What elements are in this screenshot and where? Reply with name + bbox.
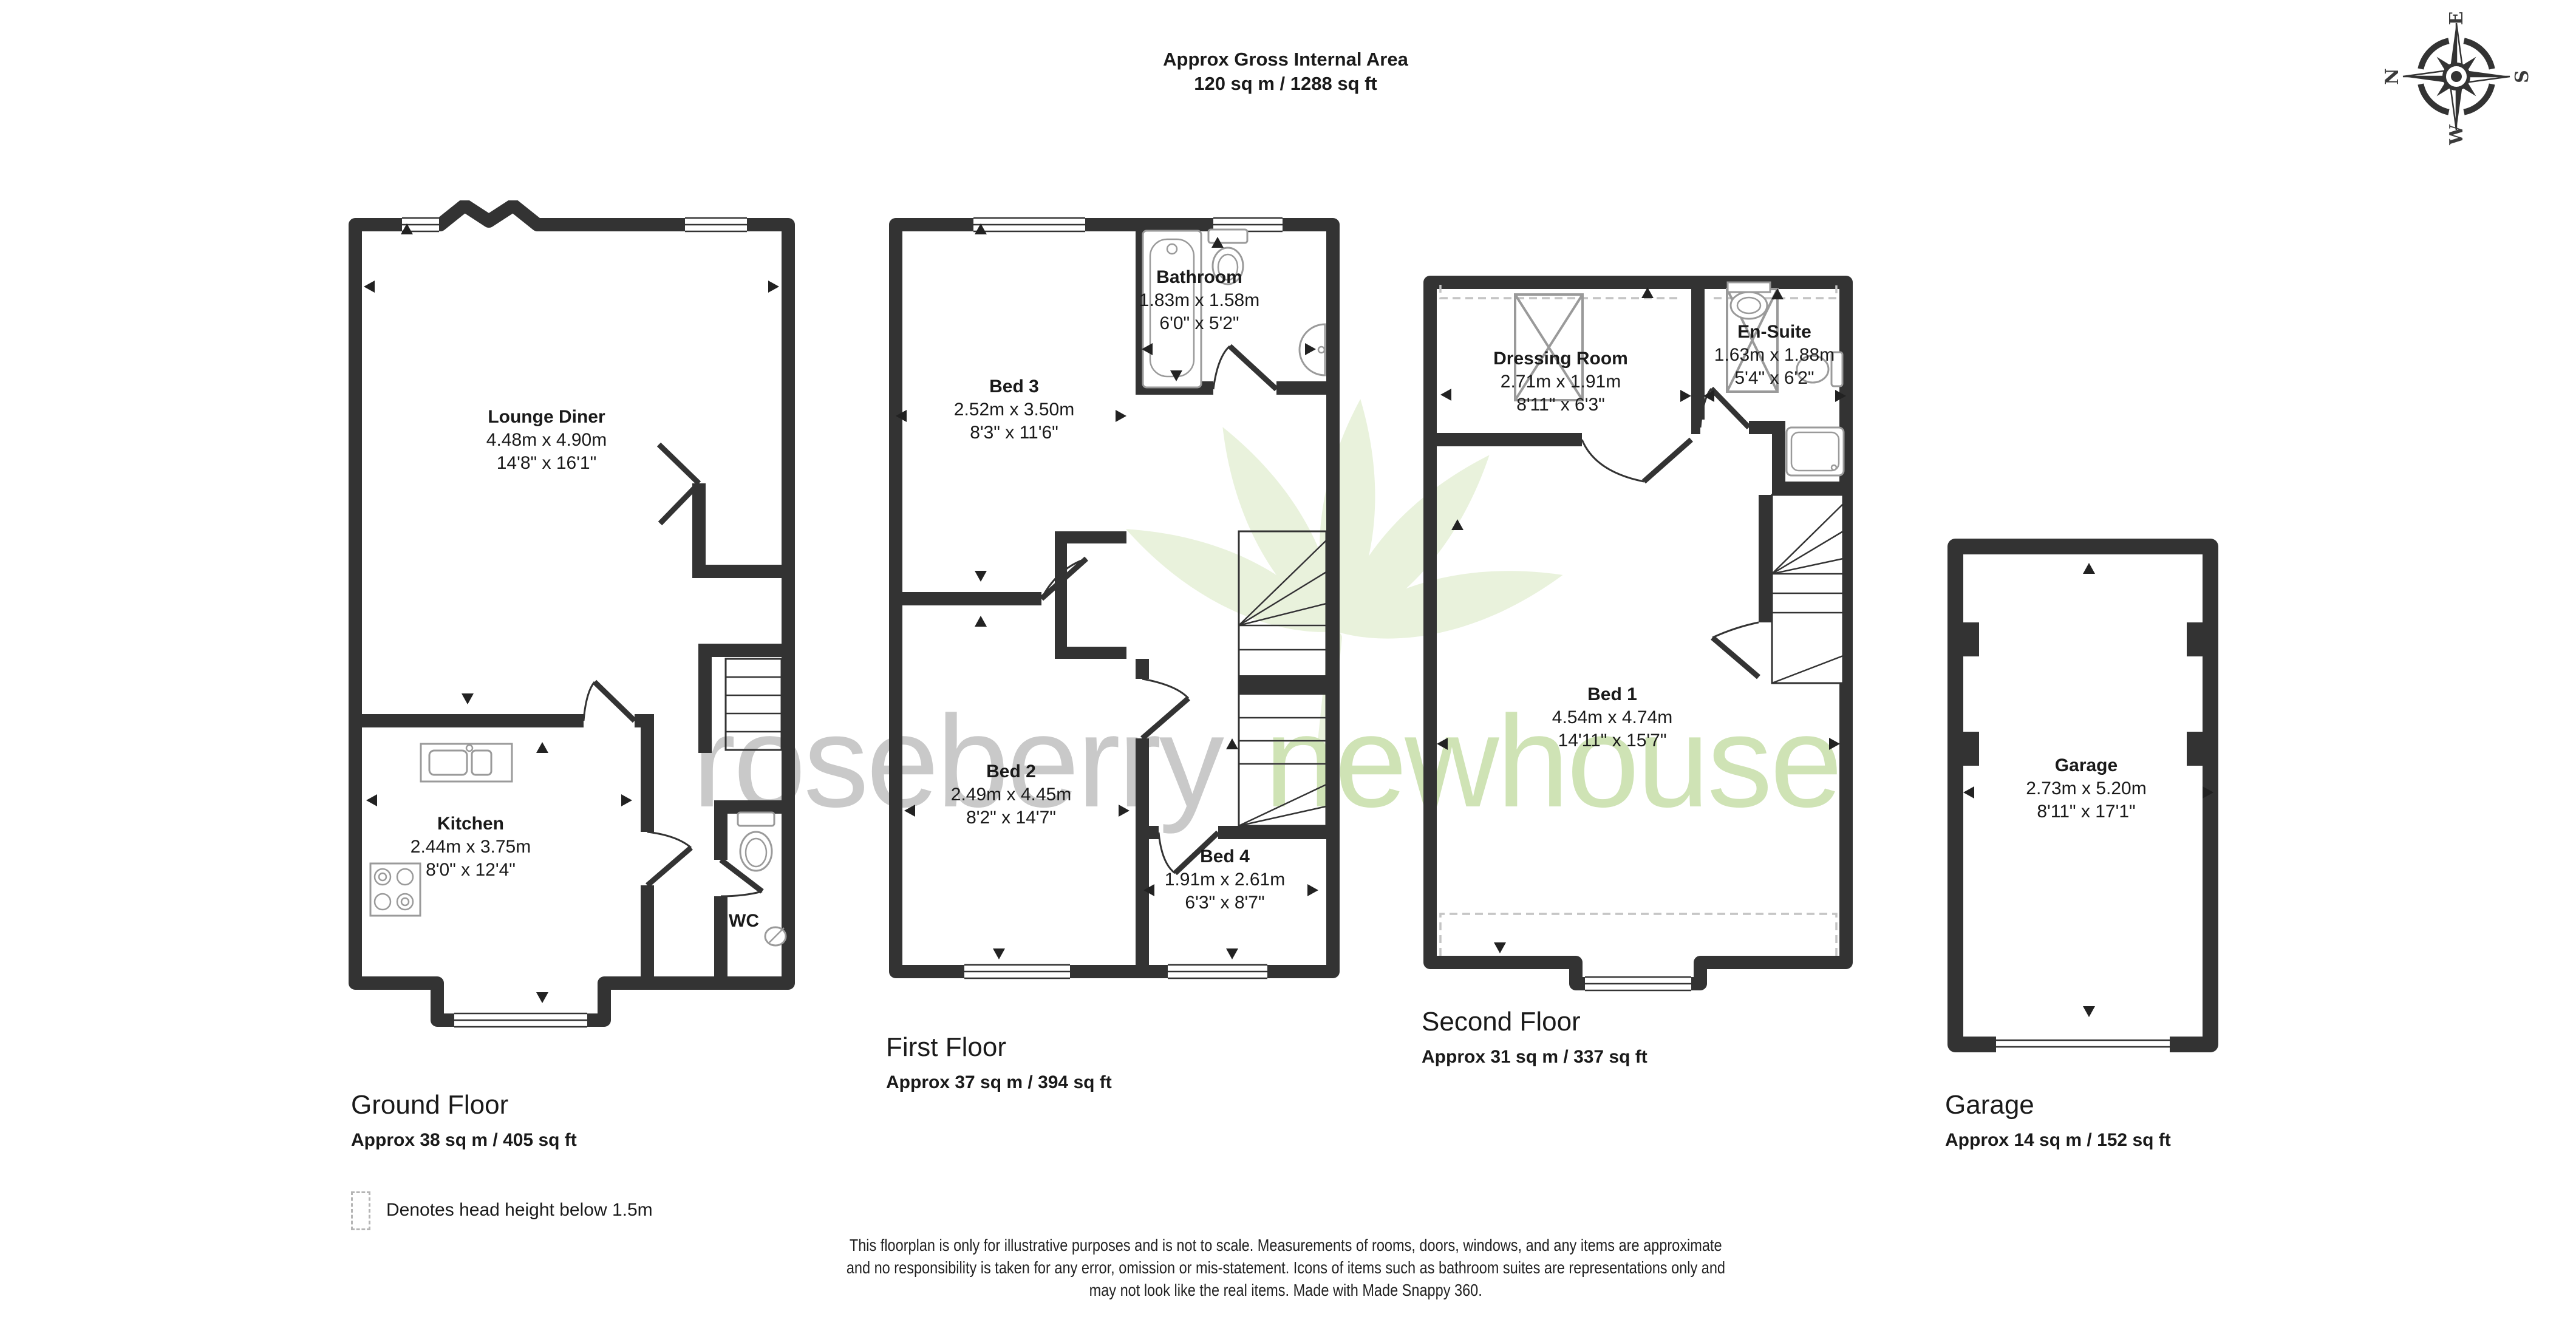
room-imperial: 8'0" x 12'4" [349,859,592,882]
room-name: Kitchen [349,812,592,836]
title-line-1: Approx Gross Internal Area [982,47,1589,72]
room-imperial: 14'8" x 16'1" [425,452,668,475]
compass-icon: N E S W [2377,0,2535,158]
room-label-dressing-room: Dressing Room 2.71m x 1.91m 8'11" x 6'3" [1463,347,1658,417]
floor-caption-garage: Garage Approx 14 sq m / 152 sq ft [1945,1090,2171,1151]
toilet-icon [738,812,774,871]
staircase [1239,531,1326,826]
floor-caption-second: Second Floor Approx 31 sq m / 337 sq ft [1422,1007,1647,1068]
floor-area: Approx 14 sq m / 152 sq ft [1945,1130,2171,1151]
room-name: Lounge Diner [425,406,668,429]
room-label-bed-3: Bed 3 2.52m x 3.50m 8'3" x 11'6" [920,375,1108,444]
room-metric: 2.44m x 3.75m [349,836,592,859]
room-label-garage: Garage 2.73m x 5.20m 8'11" x 17'1" [1991,754,2182,823]
floor-area: Approx 38 sq m / 405 sq ft [351,1130,577,1151]
floor-caption-first: First Floor Approx 37 sq m / 394 sq ft [886,1032,1112,1093]
room-label-lounge-diner: Lounge Diner 4.48m x 4.90m 14'8" x 16'1" [425,406,668,475]
room-metric: 2.71m x 1.91m [1463,370,1658,393]
room-name: Bathroom [1102,266,1297,289]
floor-area: Approx 31 sq m / 337 sq ft [1422,1047,1647,1068]
room-name: En-Suite [1677,321,1872,344]
room-imperial: 14'11" x 15'7" [1518,729,1706,752]
room-imperial: 6'3" x 8'7" [1131,891,1319,914]
floorplan-sheet: roseberrynewhouse Approx Gross Internal … [0,0,2576,1328]
room-name: Dressing Room [1463,347,1658,370]
room-metric: 2.52m x 3.50m [920,398,1108,421]
room-metric: 4.48m x 4.90m [425,429,668,452]
room-metric: 2.73m x 5.20m [1991,777,2182,800]
garage-door [1996,1035,2170,1054]
room-name: Bed 3 [920,375,1108,398]
room-metric: 1.63m x 1.88m [1677,344,1872,367]
room-label-wc: WC [704,910,783,933]
compass-south-label: S [2512,70,2533,83]
room-metric: 1.91m x 2.61m [1131,868,1319,891]
room-imperial: 6'0" x 5'2" [1102,312,1297,335]
kitchen-sink-icon [421,744,512,781]
room-imperial: 8'2" x 14'7" [917,806,1105,829]
staircase [1772,495,1843,683]
floor-title: First Floor [886,1032,1112,1063]
room-label-bed-1: Bed 1 4.54m x 4.74m 14'11" x 15'7" [1518,683,1706,752]
title-line-2: 120 sq m / 1288 sq ft [982,72,1589,96]
ground-floor-plan [337,200,823,1063]
compass-west-label: W [2446,124,2467,146]
room-name: Bed 2 [917,760,1105,783]
compass-north-label: N [2382,68,2403,84]
room-metric: 1.83m x 1.58m [1102,289,1297,312]
room-metric: 2.49m x 4.45m [917,783,1105,806]
room-label-bathroom: Bathroom 1.83m x 1.58m 6'0" x 5'2" [1102,266,1297,335]
disclaimer-line-1: This floorplan is only for illustrative … [850,1234,1722,1256]
room-name: Garage [1991,754,2182,777]
disclaimer: This floorplan is only for illustrative … [678,1234,1893,1301]
floor-title: Garage [1945,1090,2171,1120]
disclaimer-line-3: may not look like the real items. Made w… [1089,1279,1482,1301]
room-name: Bed 4 [1131,845,1319,868]
room-label-bed-2: Bed 2 2.49m x 4.45m 8'2" x 14'7" [917,760,1105,829]
room-imperial: 8'11" x 6'3" [1463,393,1658,417]
head-height-legend-swatch [351,1191,370,1230]
room-label-kitchen: Kitchen 2.44m x 3.75m 8'0" x 12'4" [349,812,592,882]
staircase [726,659,782,750]
compass-east-label: E [2446,12,2467,26]
room-imperial: 8'11" x 17'1" [1991,800,2182,823]
room-label-bed-4: Bed 4 1.91m x 2.61m 6'3" x 8'7" [1131,845,1319,914]
room-imperial: 8'3" x 11'6" [920,421,1108,444]
page-title: Approx Gross Internal Area 120 sq m / 12… [982,47,1589,96]
window-icon [1585,975,1691,992]
shower-icon [1787,427,1844,475]
room-name: Bed 1 [1518,683,1706,706]
room-name: WC [704,910,783,933]
floor-title: Second Floor [1422,1007,1647,1037]
floor-area: Approx 37 sq m / 394 sq ft [886,1072,1112,1093]
head-height-legend-text: Denotes head height below 1.5m [386,1200,653,1221]
floor-caption-ground: Ground Floor Approx 38 sq m / 405 sq ft [351,1090,577,1151]
room-imperial: 5'4" x 6'2" [1677,367,1872,390]
floor-title: Ground Floor [351,1090,577,1120]
room-metric: 4.54m x 4.74m [1518,706,1706,729]
disclaimer-line-2: and no responsibility is taken for any e… [846,1256,1725,1279]
room-label-en-suite: En-Suite 1.63m x 1.88m 5'4" x 6'2" [1677,321,1872,390]
sink-icon [1728,282,1770,319]
